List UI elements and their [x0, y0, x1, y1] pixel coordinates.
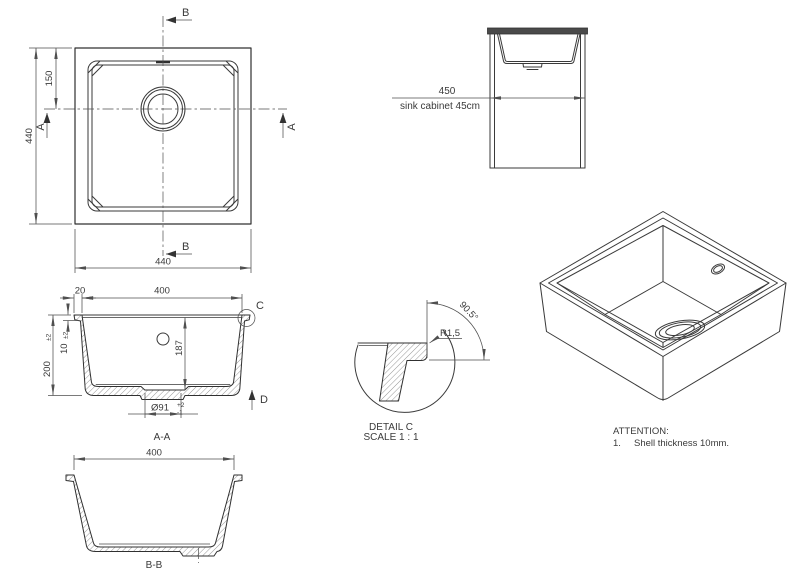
dim-187: 187 — [174, 340, 185, 356]
sink-body — [540, 283, 786, 401]
angle-value: 90.5° — [457, 300, 480, 324]
extension-lines-top — [74, 294, 242, 313]
radius-callout: R1,5 — [430, 328, 463, 343]
drain-iso — [654, 317, 706, 343]
dim-200: 200 — [42, 361, 53, 377]
overflow-hole — [157, 333, 169, 345]
dim-drain-tol-plus: +2 — [177, 402, 185, 409]
far-edges — [82, 315, 242, 385]
section-b-label-bottom: B — [182, 241, 189, 253]
dim-drain-tol-minus: -1 — [177, 410, 183, 417]
extension-lines — [29, 48, 251, 273]
detail-c-scale: SCALE 1 : 1 — [363, 432, 418, 443]
cabinet-caption: sink cabinet 45cm — [400, 101, 480, 112]
dim-20: 20 — [75, 286, 86, 297]
dim-drain-dia: Ø91 — [151, 403, 169, 414]
section-aa: 20 400 200 ±2 10 ±2 187 Ø91 +2 -1 C D A-… — [42, 286, 268, 444]
dim-400-bb: 400 — [146, 448, 162, 459]
bowl-interior — [557, 226, 769, 348]
section-bb: 400 B-B — [66, 448, 242, 572]
drawing-sheet: B B A A 440 150 440 — [0, 0, 800, 579]
detail-c-marker: C — [256, 300, 264, 312]
radius-value: R1,5 — [440, 328, 460, 339]
dim-400: 400 — [154, 286, 170, 297]
dim-10-tol: ±2 — [63, 331, 70, 339]
section-a-label-left: A — [35, 123, 47, 131]
technical-drawing: B B A A 440 150 440 — [0, 0, 800, 579]
section-a-label-right: A — [286, 123, 298, 131]
view-d-marker: D — [260, 394, 268, 406]
dim-450: 450 — [439, 86, 456, 97]
rim-corner-section — [380, 343, 428, 401]
note-item-text: Shell thickness 10mm. — [634, 438, 729, 449]
note-heading: ATTENTION: — [613, 426, 669, 437]
dim-440-bottom: 440 — [155, 257, 171, 268]
cabinet-view: 450 sink cabinet 45cm — [392, 28, 588, 168]
overflow-iso — [710, 262, 726, 276]
dim-150: 150 — [44, 71, 55, 87]
section-bb-label: B-B — [146, 560, 163, 571]
isometric-view — [540, 212, 786, 401]
section-b-label-top: B — [182, 7, 189, 19]
dim-440-left: 440 — [24, 128, 35, 144]
attention-note: ATTENTION: 1. Shell thickness 10mm. — [613, 426, 729, 449]
top-view: B B A A 440 150 440 — [24, 7, 298, 273]
sink-bowl-elevation — [498, 34, 581, 70]
note-item-number: 1. — [613, 438, 621, 449]
section-aa-label: A-A — [154, 432, 171, 443]
dim-200-tol: ±2 — [46, 333, 53, 341]
dim-10: 10 — [59, 343, 70, 354]
detail-c: 90.5° R1,5 DETAIL C SCALE 1 : 1 — [355, 300, 490, 443]
countertop — [488, 28, 588, 34]
shell-cross-section — [74, 315, 250, 400]
